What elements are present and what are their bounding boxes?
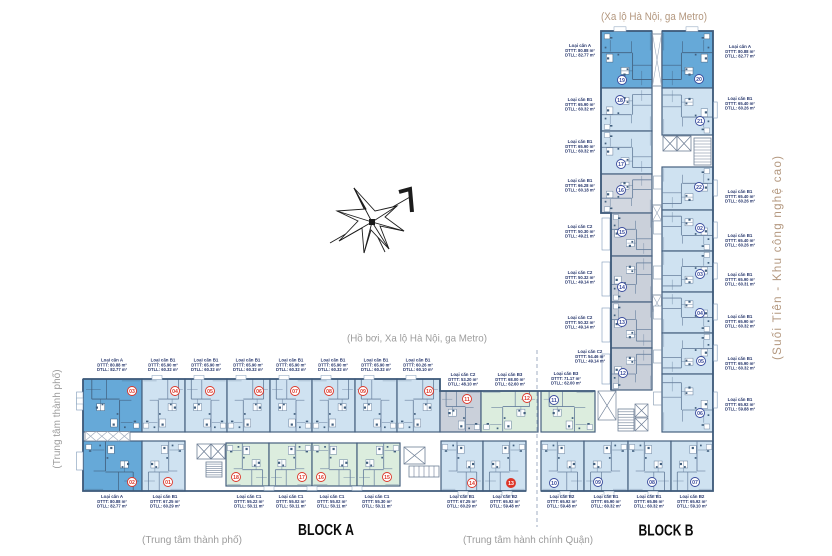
svg-text:18: 18 [617,98,623,104]
svg-text:01: 01 [165,480,171,486]
svg-text:13: 13 [619,320,625,326]
svg-text:DTLL: 59.88 m²: DTLL: 59.88 m² [725,407,756,412]
svg-text:DTLL: 60.18 m²: DTLL: 60.18 m² [565,188,596,193]
svg-text:08: 08 [649,480,655,486]
svg-text:DTLL: 82.77 m²: DTLL: 82.77 m² [725,54,756,59]
svg-text:DTLL: 60.32 m²: DTLL: 60.32 m² [191,367,222,372]
svg-text:21: 21 [697,119,703,125]
svg-text:14: 14 [469,481,475,487]
svg-text:DTLL: 60.32 m²: DTLL: 60.32 m² [276,367,307,372]
svg-text:17: 17 [618,162,624,168]
svg-text:13: 13 [508,481,514,487]
svg-text:DTLL: 60.32 m²: DTLL: 60.32 m² [634,504,665,509]
svg-text:DTLL: 49.21 m²: DTLL: 49.21 m² [565,234,596,239]
svg-text:DTLL: 50.11 m²: DTLL: 50.11 m² [234,504,264,509]
svg-text:09: 09 [595,480,601,486]
svg-text:06: 06 [697,411,703,417]
svg-text:04: 04 [172,389,178,395]
svg-text:DTLL: 60.32 m²: DTLL: 60.32 m² [591,504,622,509]
svg-text:DTLL: 60.32 m²: DTLL: 60.32 m² [318,367,349,372]
svg-text:02: 02 [697,226,703,232]
svg-text:DTLL: 82.77 m²: DTLL: 82.77 m² [565,53,596,58]
svg-text:17: 17 [299,475,305,481]
svg-text:DTLL: 50.11 m²: DTLL: 50.11 m² [317,504,347,509]
svg-text:DTLL: 82.77 m²: DTLL: 82.77 m² [97,367,128,372]
svg-text:16: 16 [618,188,624,194]
svg-text:02: 02 [129,480,135,486]
svg-text:12: 12 [620,371,626,377]
svg-text:DTLL: 60.32 m²: DTLL: 60.32 m² [565,149,596,154]
svg-text:10: 10 [551,481,557,487]
svg-text:DTLL: 60.32 m²: DTLL: 60.32 m² [148,367,179,372]
svg-text:DTLL: 50.11 m²: DTLL: 50.11 m² [276,504,306,509]
svg-text:04: 04 [697,311,703,317]
svg-text:10: 10 [426,389,432,395]
svg-text:09: 09 [360,389,366,395]
svg-text:DTLL: 62.00 m²: DTLL: 62.00 m² [551,381,582,386]
svg-text:DTLL: 49.14 m²: DTLL: 49.14 m² [565,325,596,330]
svg-text:18: 18 [233,475,239,481]
svg-text:11: 11 [551,398,557,404]
svg-text:DTLL: 60.32 m²: DTLL: 60.32 m² [361,367,392,372]
svg-text:20: 20 [696,77,702,83]
svg-text:08: 08 [326,389,332,395]
svg-text:DTLL: 59.48 m²: DTLL: 59.48 m² [547,504,578,509]
svg-text:05: 05 [207,389,213,395]
svg-text:DTLL: 60.29 m²: DTLL: 60.29 m² [447,504,478,509]
svg-text:14: 14 [619,285,625,291]
svg-text:DTLL: 60.26 m²: DTLL: 60.26 m² [725,199,756,204]
svg-text:(Trung tâm hành chính Quận): (Trung tâm hành chính Quận) [463,534,593,546]
svg-text:(Trung tâm thành phố): (Trung tâm thành phố) [142,534,242,546]
svg-text:DTLL: 60.32 m²: DTLL: 60.32 m² [725,324,756,329]
svg-text:12: 12 [524,396,530,402]
svg-text:15: 15 [619,230,625,236]
svg-text:DTLL: 60.26 m²: DTLL: 60.26 m² [725,106,756,111]
svg-text:07: 07 [692,480,698,486]
svg-text:DTLL: 49.14 m²: DTLL: 49.14 m² [565,280,596,285]
svg-text:DTLL: 48.10 m²: DTLL: 48.10 m² [448,382,479,387]
svg-text:03: 03 [129,389,135,395]
svg-text:22: 22 [696,185,702,191]
svg-text:(Trung tâm thành phố): (Trung tâm thành phố) [51,369,63,468]
svg-text:BLOCK B: BLOCK B [639,523,694,540]
svg-text:DTLL: 60.10 m²: DTLL: 60.10 m² [403,367,434,372]
svg-text:DTLL: 60.29 m²: DTLL: 60.29 m² [150,504,181,509]
svg-text:DTLL: 60.31 m²: DTLL: 60.31 m² [725,282,756,287]
svg-text:DTLL: 49.14 m²: DTLL: 49.14 m² [575,359,606,364]
svg-text:DTLL: 60.32 m²: DTLL: 60.32 m² [233,367,264,372]
svg-text:BLOCK A: BLOCK A [298,522,354,539]
svg-text:DTLL: 82.77 m²: DTLL: 82.77 m² [97,504,128,509]
svg-text:DTLL: 62.60 m²: DTLL: 62.60 m² [495,382,526,387]
svg-text:07: 07 [292,389,298,395]
svg-text:DTLL: 50.11 m²: DTLL: 50.11 m² [362,504,392,509]
svg-text:DTLL: 59.10 m²: DTLL: 59.10 m² [677,504,708,509]
svg-text:(Hồ bơi, Xa lộ Hà Nội, ga Metr: (Hồ bơi, Xa lộ Hà Nội, ga Metro) [347,333,487,345]
svg-text:DTLL: 60.32 m²: DTLL: 60.32 m² [565,107,596,112]
svg-text:03: 03 [697,272,703,278]
svg-text:DTLL: 60.32 m²: DTLL: 60.32 m² [725,366,756,371]
svg-text:(Xa lộ Hà Nội, ga Metro): (Xa lộ Hà Nội, ga Metro) [601,11,707,23]
svg-text:DTLL: 60.26 m²: DTLL: 60.26 m² [725,243,756,248]
svg-text:06: 06 [256,389,262,395]
svg-text:19: 19 [619,78,625,84]
svg-text:16: 16 [318,475,324,481]
svg-text:DTLL: 59.48 m²: DTLL: 59.48 m² [490,504,521,509]
svg-text:11: 11 [464,397,470,403]
svg-text:05: 05 [698,359,704,365]
svg-text:15: 15 [384,475,390,481]
